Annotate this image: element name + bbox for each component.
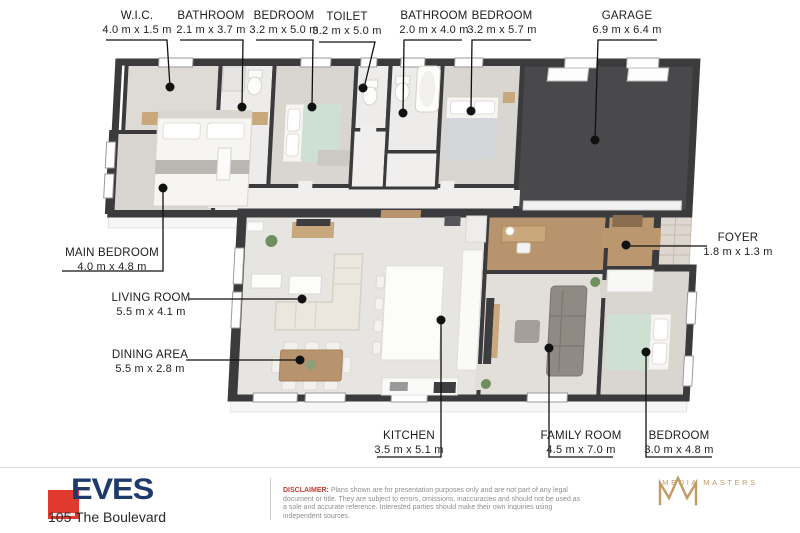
room-name: BEDROOM	[472, 10, 533, 22]
room-dims: 1.8 m x 1.3 m	[703, 246, 772, 258]
room-dims: 4.0 m x 4.8 m	[77, 261, 146, 273]
room-dims: 2.0 m x 4.0 m	[399, 24, 468, 36]
room-dims: 4.5 m x 7.0 m	[546, 444, 615, 456]
room-dims: 3.2 m x 5.0 m	[312, 25, 381, 37]
room-dims: 5.5 m x 2.8 m	[115, 363, 184, 375]
label-bedroom-2: BEDROOM 3.2 m x 5.7 m	[467, 9, 536, 37]
label-foyer: FOYER 1.8 m x 1.3 m	[703, 231, 772, 259]
label-main-bedroom: MAIN BEDROOM 4.0 m x 4.8 m	[65, 246, 159, 274]
footer-vertical-divider	[270, 478, 271, 520]
room-dims: 2.1 m x 3.7 m	[176, 24, 245, 36]
hallway	[213, 186, 516, 212]
room-dims: 3.2 m x 5.0 m	[249, 24, 318, 36]
crown-icon	[655, 474, 701, 506]
room-dims: 3.5 m x 5.1 m	[374, 444, 443, 456]
room-name: TOILET	[326, 11, 367, 23]
room-name: BEDROOM	[254, 10, 315, 22]
label-living-room: LIVING ROOM 5.5 m x 4.1 m	[112, 291, 191, 319]
room-dims: 3.2 m x 5.7 m	[467, 24, 536, 36]
footer-divider-line	[0, 467, 800, 468]
room-name: BATHROOM	[400, 10, 467, 22]
room-name: MAIN BEDROOM	[65, 247, 159, 259]
room-dims: 4.0 m x 1.5 m	[102, 24, 171, 36]
room-name: W.I.C.	[121, 10, 154, 22]
floor-plan-page: W.I.C. 4.0 m x 1.5 m BATHROOM 2.1 m x 3.…	[0, 0, 800, 533]
room-name: KITCHEN	[383, 430, 435, 442]
entry-porch	[658, 215, 692, 265]
label-wic: W.I.C. 4.0 m x 1.5 m	[102, 9, 171, 37]
label-bathroom-1: BATHROOM 2.1 m x 3.7 m	[176, 9, 245, 37]
room-dims: 5.5 m x 4.1 m	[116, 306, 185, 318]
room-name: FAMILY ROOM	[540, 430, 621, 442]
room-name: LIVING ROOM	[112, 292, 191, 304]
room-name: GARAGE	[602, 10, 652, 22]
media-masters-logo: MEDIA MASTERS	[655, 474, 765, 487]
room-name: BATHROOM	[177, 10, 244, 22]
label-garage: GARAGE 6.9 m x 6.4 m	[592, 9, 661, 37]
property-address: 105 The Boulevard	[48, 509, 166, 525]
label-kitchen: KITCHEN 3.5 m x 5.1 m	[374, 429, 443, 457]
room-garage	[515, 64, 697, 212]
disclaimer: DISCLAIMER: Plans shown are for presenta…	[283, 487, 583, 521]
room-name: DINING AREA	[112, 349, 188, 361]
room-dims: 3.0 m x 4.8 m	[644, 444, 713, 456]
agency-wordmark: EVES	[71, 473, 153, 507]
room-dims: 6.9 m x 6.4 m	[592, 24, 661, 36]
room-name: FOYER	[718, 232, 759, 244]
room-name: BEDROOM	[649, 430, 710, 442]
disclaimer-label: DISCLAIMER:	[283, 487, 329, 494]
label-bedroom-1: BEDROOM 3.2 m x 5.0 m	[249, 9, 318, 37]
label-toilet: TOILET 3.2 m x 5.0 m	[312, 10, 381, 38]
label-dining-area: DINING AREA 5.5 m x 2.8 m	[112, 348, 188, 376]
label-family-room: FAMILY ROOM 4.5 m x 7.0 m	[540, 429, 621, 457]
label-bathroom-2: BATHROOM 2.0 m x 4.0 m	[399, 9, 468, 37]
label-bedroom-3: BEDROOM 3.0 m x 4.8 m	[644, 429, 713, 457]
